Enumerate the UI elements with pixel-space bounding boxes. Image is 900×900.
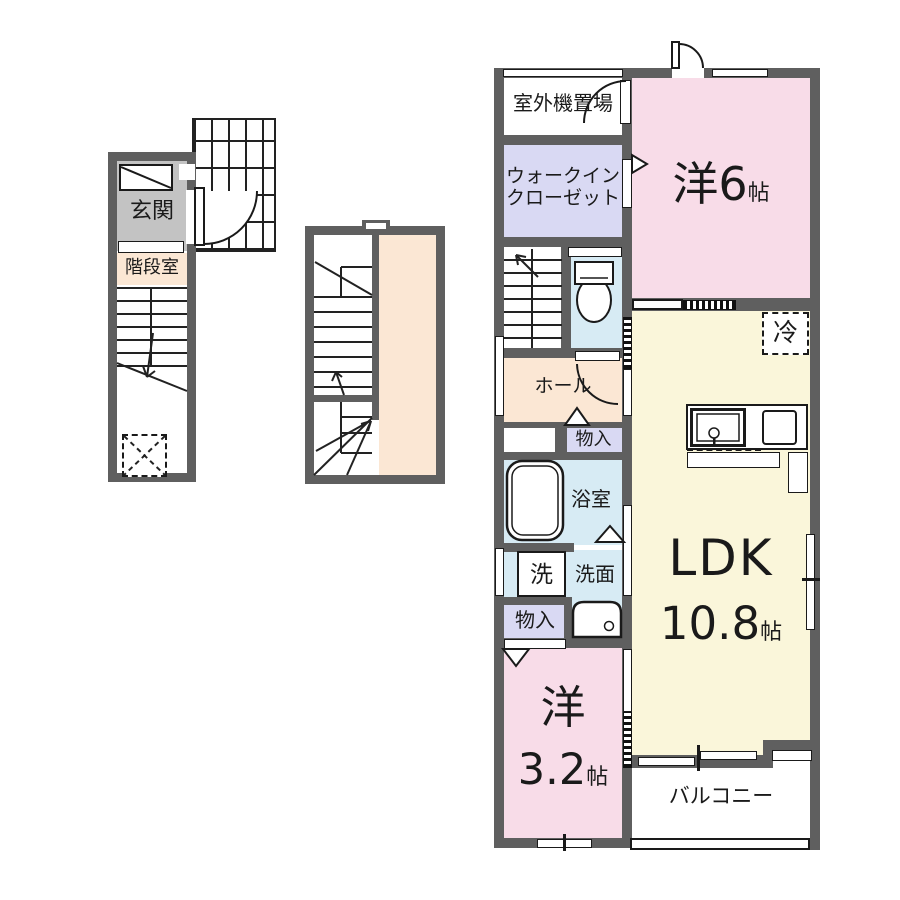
- wall: [494, 135, 632, 145]
- basin-icon: [570, 597, 624, 639]
- balcony-railing: [630, 838, 810, 850]
- bath-label: 浴室: [556, 488, 626, 511]
- western32-label: 洋: [504, 682, 622, 734]
- wall: [810, 68, 820, 850]
- fridge-label: 冷: [762, 319, 809, 348]
- outdoor-unit-label: 室外機置場: [500, 92, 626, 115]
- ldk-label: LDK: [632, 530, 810, 588]
- wall: [494, 237, 632, 247]
- western-room-3-2: [504, 646, 622, 840]
- wall: [561, 247, 571, 358]
- window-tick: [563, 834, 566, 851]
- counter-extension: [687, 452, 780, 468]
- floor-plan-canvas: 玄関 階段室: [0, 0, 900, 900]
- storage1-label: 物入: [565, 430, 622, 451]
- door-opening: [623, 505, 632, 596]
- toilet-counter: [568, 247, 622, 257]
- bath-door-marker: [594, 524, 626, 544]
- western32-size-label: 3.2帖: [504, 746, 622, 795]
- window-tick: [697, 745, 700, 771]
- stairwell-label: 階段室: [117, 258, 187, 279]
- shoe-cabinet-diagonal: [119, 164, 173, 191]
- sliding-window-sash: [638, 757, 695, 766]
- balcony-partition: [772, 750, 812, 761]
- sliding-door-panel: [683, 300, 736, 310]
- door-opening: [118, 241, 184, 253]
- wall: [504, 597, 566, 605]
- meter-box: [179, 164, 195, 180]
- vent-tab-inner: [366, 223, 386, 229]
- sliding-window-sash: [700, 751, 757, 760]
- sliding-door-panel: [632, 299, 683, 310]
- entrance-label: 玄関: [117, 199, 187, 224]
- toilet-icon: [573, 260, 615, 324]
- washstand-label: 洗面: [566, 563, 624, 586]
- washer-label: 洗: [517, 562, 566, 588]
- stove-icon: [762, 410, 797, 445]
- counter-return: [788, 452, 808, 493]
- sliding-door-panel: [623, 712, 632, 768]
- folding-door-marker: [563, 405, 591, 427]
- stairs-2f: [314, 235, 374, 475]
- stair-landing: [379, 235, 436, 475]
- wic-label: ウォークイン クローゼット: [504, 166, 622, 210]
- window: [712, 69, 768, 77]
- balcony-label: バルコニー: [632, 784, 810, 808]
- counter-dashed-edge: [687, 449, 761, 451]
- sink-icon: [690, 408, 746, 447]
- window: [495, 336, 504, 416]
- front-door-arc: [195, 187, 259, 247]
- sliding-door-panel: [623, 649, 632, 712]
- void-hatch-cross: [122, 434, 167, 477]
- ldk-size-label: 10.8帖: [632, 598, 810, 650]
- sliding-door-panel: [623, 317, 632, 369]
- window: [495, 548, 504, 596]
- entry-door-arc: [668, 38, 710, 72]
- sliding-door-panel: [623, 369, 632, 416]
- storage-door-marker: [501, 647, 531, 668]
- storage2-label: 物入: [504, 609, 566, 632]
- hall-label: ホール: [504, 376, 622, 398]
- western6-label: 洋6帖: [632, 158, 810, 211]
- stairs-main: [504, 247, 562, 348]
